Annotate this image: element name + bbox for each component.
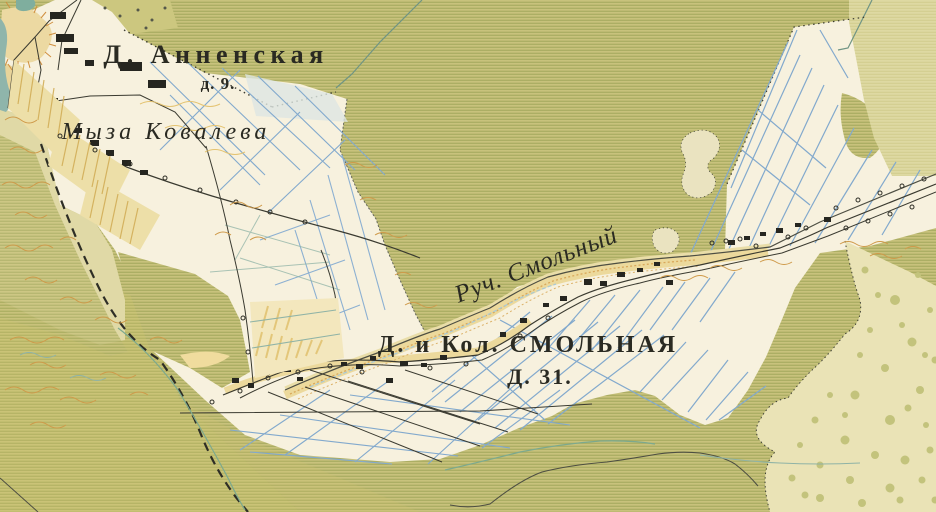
svg-text:д. 9.: д. 9. (201, 74, 236, 93)
svg-text:Д. 31.: Д. 31. (507, 364, 573, 389)
svg-text:Мыза Ковалева: Мыза Ковалева (61, 119, 271, 145)
svg-text:Д. Анненская: Д. Анненская (103, 40, 328, 69)
svg-text:Д. и Кол. СМОЛЬНАЯ: Д. и Кол. СМОЛЬНАЯ (378, 332, 678, 358)
